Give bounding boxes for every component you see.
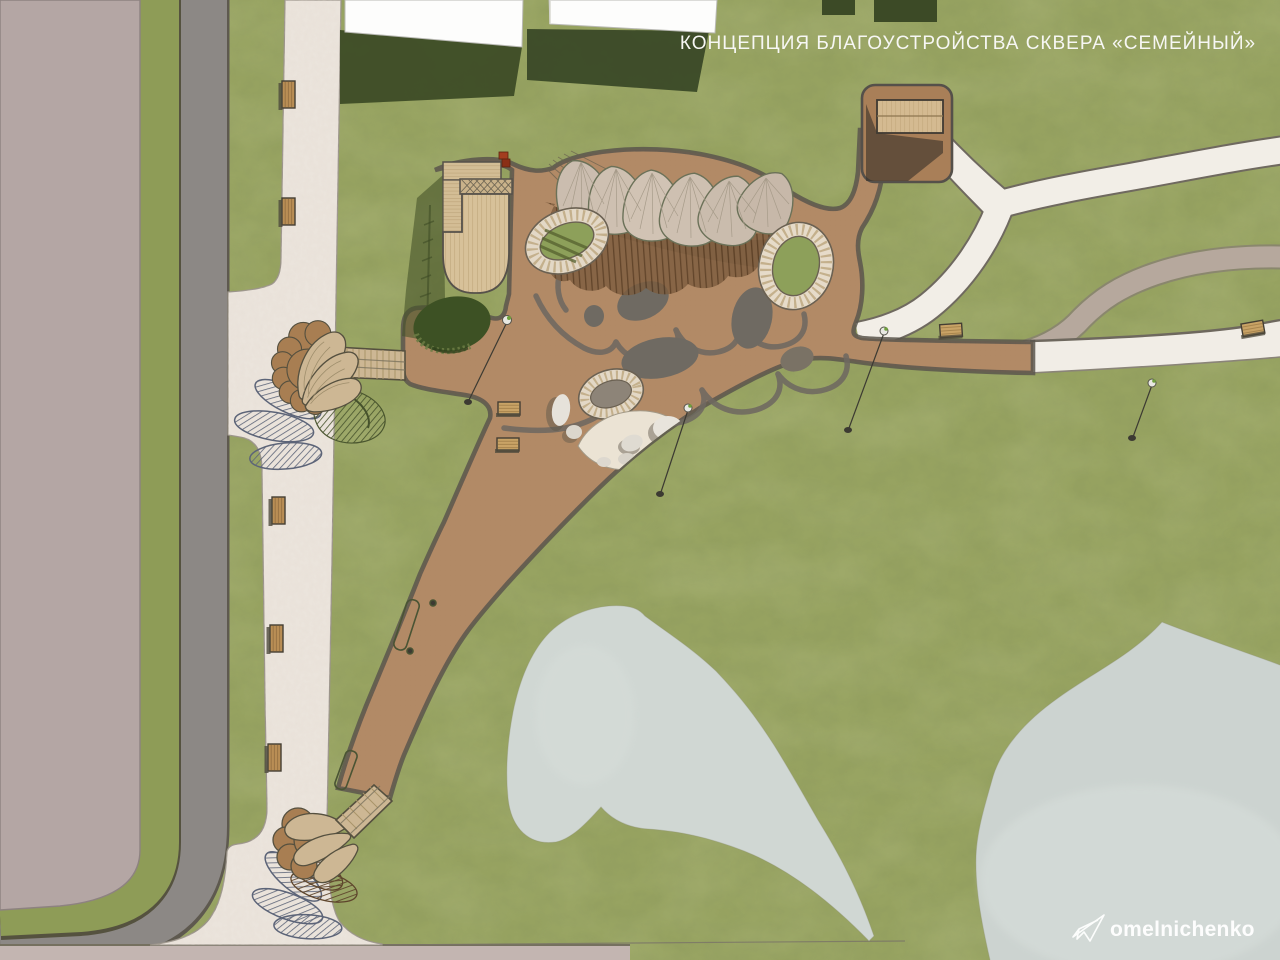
svg-text:КОНЦЕПЦИЯ БЛАГОУСТРОЙСТВА СКВЕ: КОНЦЕПЦИЯ БЛАГОУСТРОЙСТВА СКВЕРА «СЕМЕЙН… xyxy=(680,32,1256,54)
svg-text:omelnichenko: omelnichenko xyxy=(1110,918,1255,941)
